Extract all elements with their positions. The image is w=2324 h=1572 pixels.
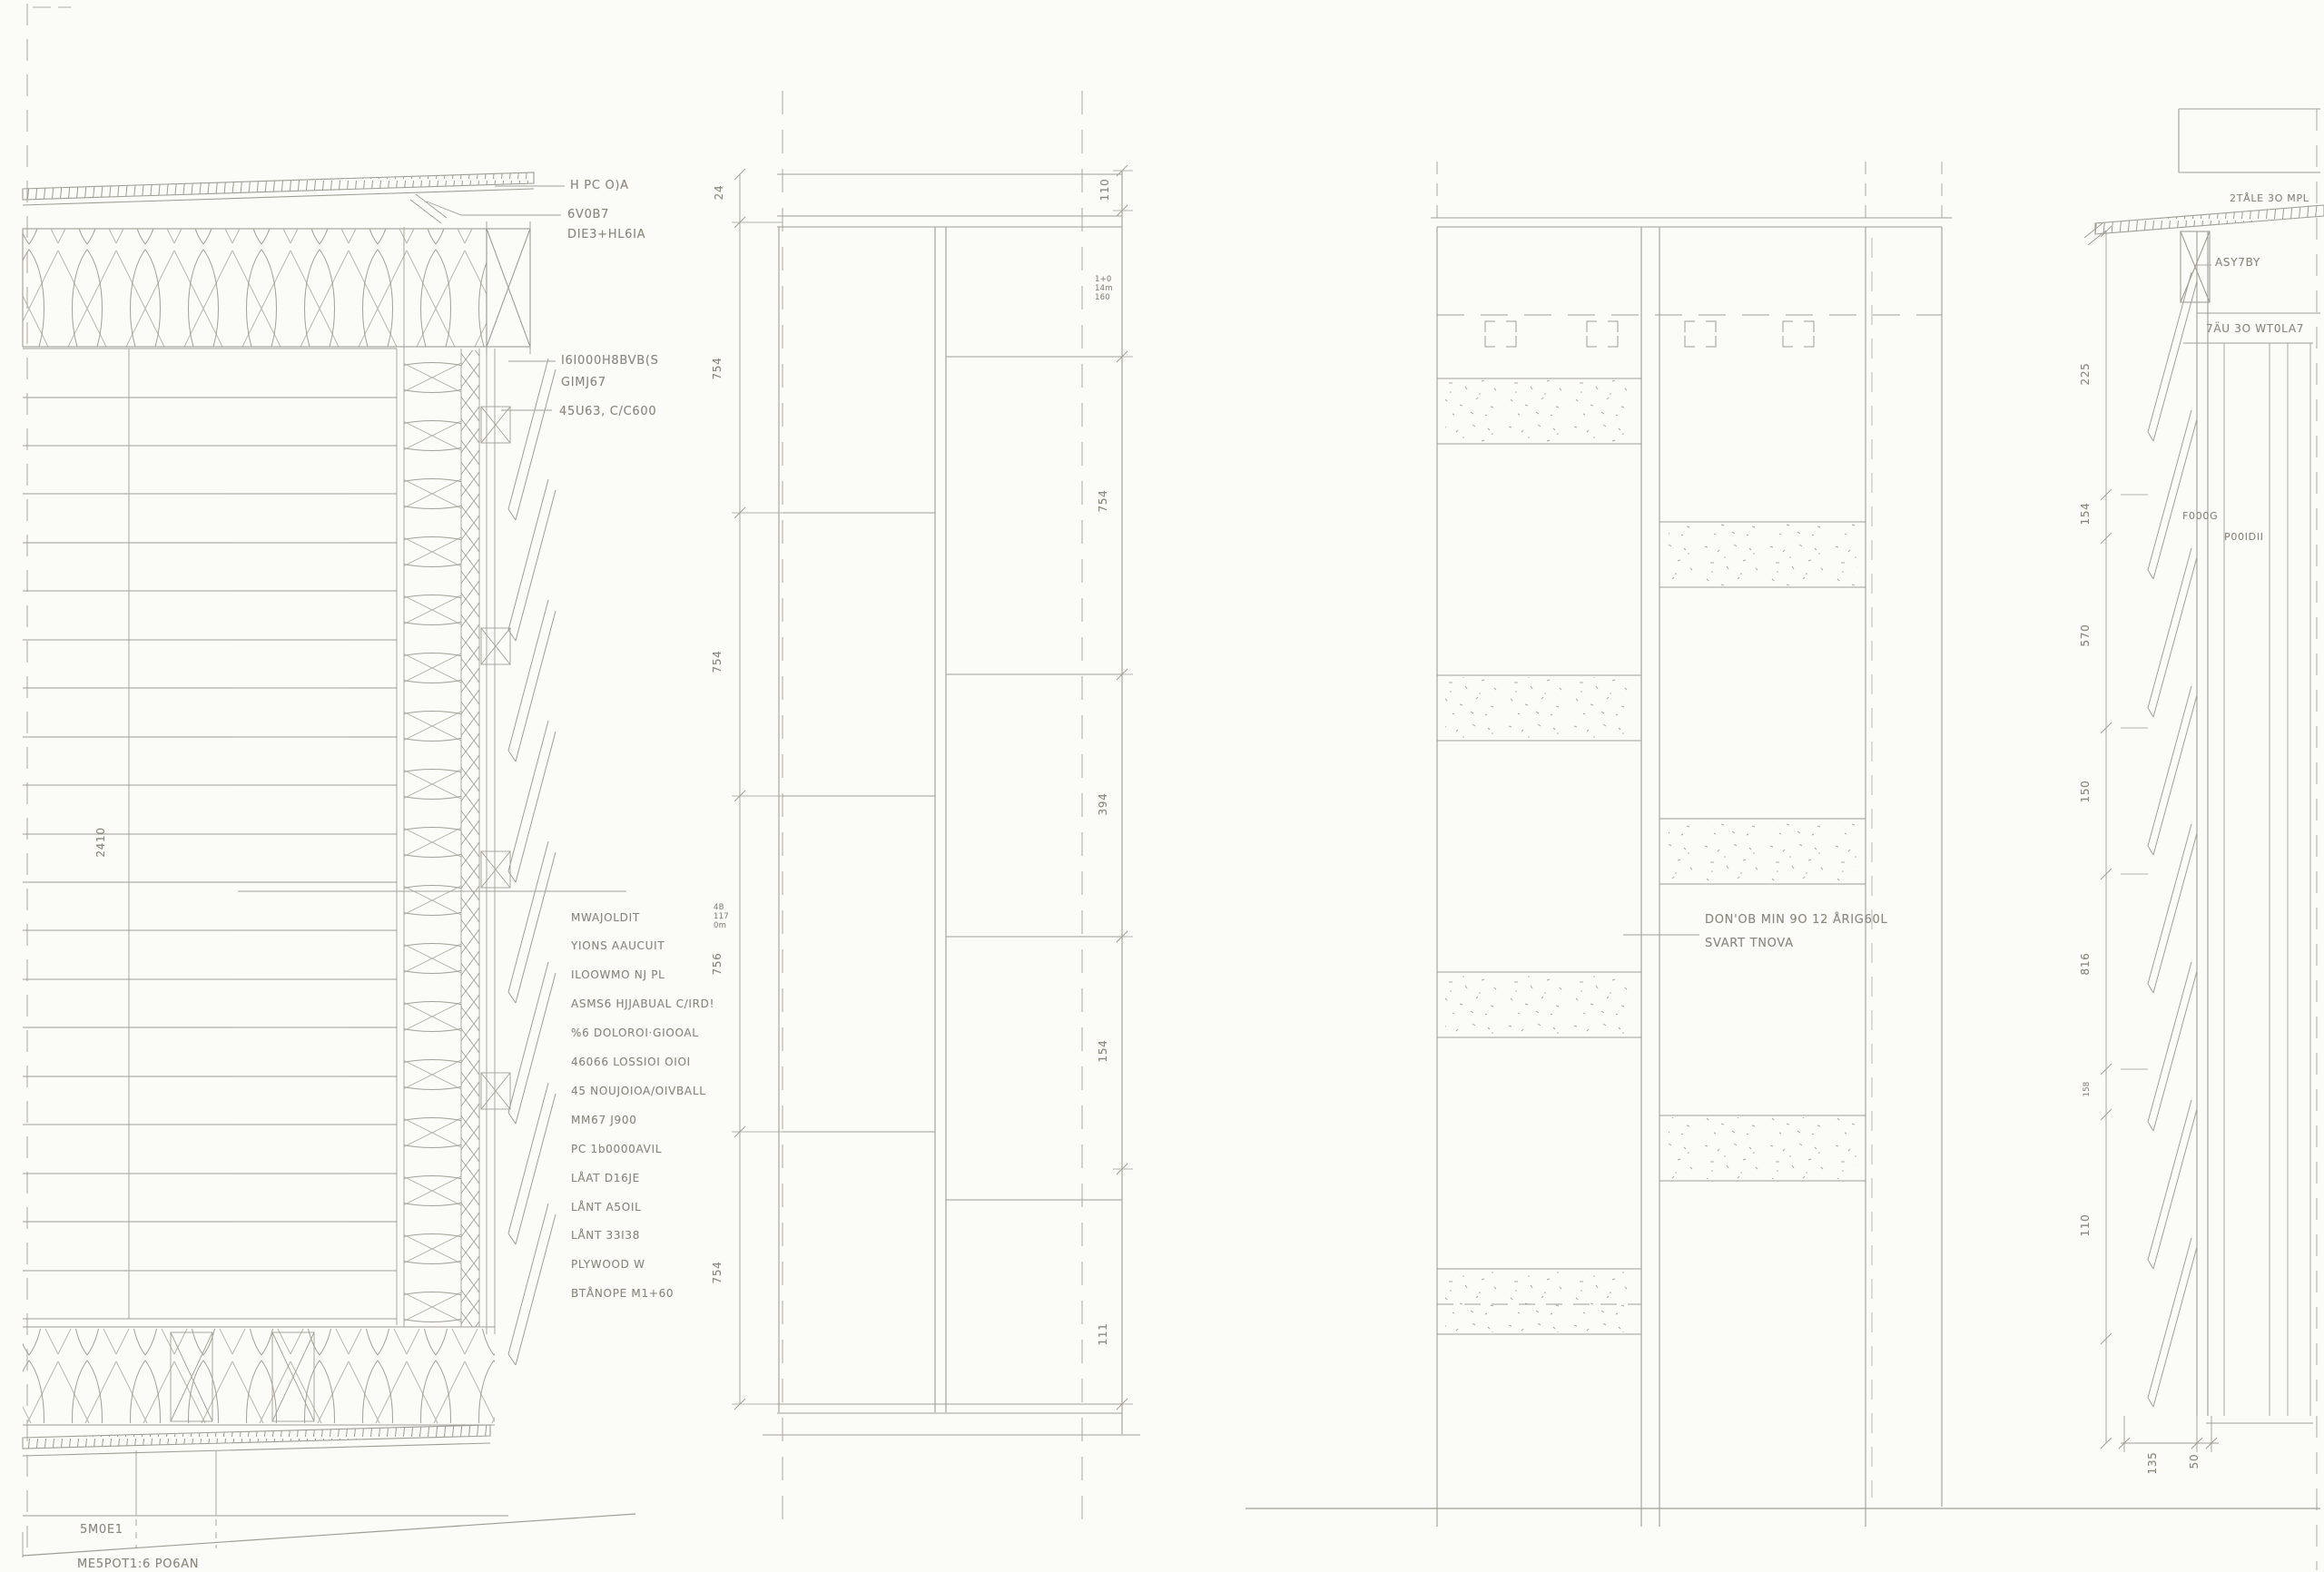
elevation-note-line2: SVART TNOVA	[1705, 937, 1794, 952]
note-line: ASMS6 HJJABUAL C/IRD!	[571, 997, 714, 1012]
rd-dim-135: 135	[2146, 1451, 2161, 1474]
wall-buildup-note-block: MWAJOLDIT YIONS AAUCUIT ILOOWMO NJ PL AS…	[571, 897, 714, 1316]
dimension-2410: 2410	[94, 827, 109, 857]
batten-callout: ASY7BY	[2215, 256, 2260, 270]
elevation-note-line1: DON'OB MIN 9O 12 ÅRIG60L	[1705, 913, 1887, 928]
note-line: %6 DOLOROI·GIOOAL	[571, 1027, 714, 1041]
rd-dim-50: 50	[2188, 1454, 2202, 1469]
note-line: YIONS AAUCUIT	[571, 939, 714, 954]
drawing-sheet: H PC O)A 6V0B7 DIE3+HL6IA I6I000H8BVB(S …	[0, 0, 2324, 1572]
note-line: LÅAT D16JE	[571, 1172, 714, 1186]
note-line: 46066 LOSSIOI OIOI	[571, 1056, 714, 1070]
frame-head-note: 7ÄU 3O WT0LA7	[2206, 322, 2304, 337]
note-line: MM67 J900	[571, 1114, 714, 1128]
dim-right-110: 110	[1098, 178, 1113, 201]
dim-left-tiny-note: 4B 117 0m	[714, 904, 729, 930]
dim-left-756: 756	[711, 952, 725, 975]
rd-dim-570: 570	[2079, 624, 2093, 646]
dim-right-154: 154	[1097, 1039, 1111, 1062]
annotation-batten-line1: I6I000H8BVB(S	[561, 354, 659, 369]
annotation-top-flashing: H PC O)A	[570, 179, 629, 194]
note-line: PC 1b0000AVIL	[571, 1143, 714, 1157]
annotation-drip-line1: 6V0B7	[567, 208, 609, 223]
note-line: MWAJOLDIT	[571, 911, 714, 926]
note-line: LÅNT A5OIL	[571, 1201, 714, 1215]
rd-dim-154: 154	[2079, 502, 2093, 525]
note-line: ILOOWMO NJ PL	[571, 968, 714, 983]
dim-right-tiny-note: 1+0 14m 160	[1095, 276, 1113, 302]
dim-right-394: 394	[1097, 792, 1111, 815]
rd-dim-225: 225	[2079, 362, 2093, 385]
foder-label-2: P00IDII	[2224, 531, 2264, 544]
rd-dim-158: 158	[2083, 1082, 2093, 1097]
dim-right-111: 111	[1097, 1322, 1111, 1345]
foder-label-1: F000G	[2182, 510, 2218, 523]
note-line: PLYWOOD W	[571, 1258, 714, 1272]
roof-edge-note: 2TÅLE 3O MPL	[2230, 192, 2309, 205]
dim-left-754a: 754	[711, 357, 725, 379]
ground-label-existing: ME5POT1:6 PO6AN	[77, 1557, 199, 1572]
annotation-batten-spacing: 45U63, C/C600	[559, 405, 656, 420]
note-line: 45 NOUJOIOA/OIVBALL	[571, 1085, 714, 1099]
annotation-batten-line2: GIMJ67	[561, 376, 606, 391]
drawing-linework	[0, 0, 2324, 1572]
annotation-drip-line2: DIE3+HL6IA	[567, 228, 645, 243]
note-line: LÅNT 33I38	[571, 1229, 714, 1243]
dim-left-754c: 754	[711, 1261, 725, 1283]
rd-dim-110: 110	[2079, 1213, 2093, 1236]
dim-right-754: 754	[1097, 489, 1111, 512]
dim-left-24: 24	[713, 185, 727, 201]
rd-dim-816: 816	[2079, 952, 2093, 975]
rd-dim-150: 150	[2079, 780, 2093, 802]
dim-left-754b: 754	[711, 650, 725, 673]
note-line: BTÅNOPE M1+60	[571, 1287, 714, 1302]
ground-label-1: 5M0E1	[80, 1523, 123, 1538]
